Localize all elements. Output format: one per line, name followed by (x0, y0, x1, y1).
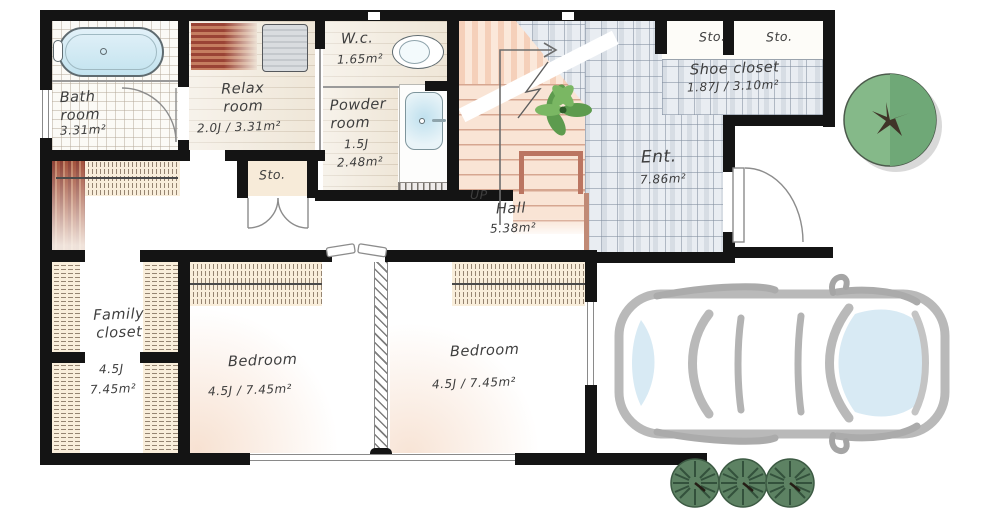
car (619, 277, 949, 451)
bedroom-doors (326, 244, 387, 257)
bath-divider-line (52, 80, 178, 82)
wall-segment (237, 156, 248, 198)
shoe-closet-label: Shoe closet (690, 58, 780, 79)
bedroom-west-label: Bedroom (228, 351, 298, 372)
wall-segment (40, 150, 190, 161)
relax-room-mat (191, 23, 257, 70)
sink-faucet-dot (419, 118, 425, 124)
wall-segment (723, 115, 835, 126)
stair-rail (519, 151, 583, 194)
bush (719, 459, 767, 507)
storage-strip (662, 21, 823, 60)
wall-segment (140, 250, 332, 262)
wall-notch (368, 12, 380, 20)
floor-plan: Bath room 3.31m² Relax room 2.0J / 3.31m… (0, 0, 1000, 510)
bedroom-west-area: 4.5J / 7.45m² (208, 382, 292, 400)
bedroom-east-closet-rod (452, 283, 585, 285)
wall-segment (40, 10, 52, 90)
family-closet-area-sqm: 7.45m² (90, 381, 137, 398)
wall-segment (385, 250, 585, 262)
partition-line (319, 48, 321, 152)
bath-room-area: 3.31m² (60, 122, 107, 139)
wall-segment (40, 250, 85, 262)
bush (671, 459, 719, 507)
bedroom-partition-future (374, 262, 388, 452)
powder-room-area-sqm: 2.48m² (337, 154, 384, 171)
wall-segment (40, 453, 250, 465)
toilet (392, 35, 444, 69)
storage-wet-label: Sto. (259, 167, 286, 184)
bush (766, 459, 814, 507)
entrance-wood-liner (584, 193, 589, 252)
wall-segment (723, 126, 735, 172)
sink-faucet-lever (432, 119, 446, 122)
wall-segment (447, 21, 459, 201)
shower-unit (262, 24, 308, 72)
wall-segment (40, 352, 85, 363)
wc-area: 1.65m² (337, 51, 384, 68)
bedroom-west-closet-rod (183, 283, 322, 285)
wall-segment (315, 21, 325, 49)
wall-segment (585, 385, 597, 465)
bathtub-faucet (53, 40, 63, 62)
window (42, 90, 49, 138)
powder-room-label: Powder room (329, 95, 402, 134)
bathtub-drain (100, 48, 107, 55)
family-closet-area-jo: 4.5J (99, 362, 124, 378)
bedroom-east-label: Bedroom (450, 341, 520, 362)
wall-segment (515, 453, 707, 465)
entrance-area: 7.86m² (640, 171, 687, 188)
hall-label: Hall (496, 199, 526, 218)
entrance-label: Ent. (641, 146, 677, 168)
hall-area: 5.38m² (490, 220, 537, 237)
wall-segment (728, 247, 833, 258)
wall-notch (562, 12, 574, 20)
wc-label: W.c. (341, 29, 374, 48)
porch (735, 127, 823, 247)
bathtub (58, 27, 164, 77)
storage-double-door (248, 198, 308, 228)
storage-right-label: Sto. (766, 29, 793, 46)
wall-segment (585, 250, 597, 302)
bedroom-east-area: 4.5J / 7.45m² (432, 375, 516, 393)
stairs-up-label: UP (470, 187, 488, 203)
toilet-bowl (399, 40, 430, 64)
family-closet-label: Family closet (87, 305, 150, 343)
wall-segment (40, 138, 52, 465)
bath-room-label: Bath room (59, 87, 126, 126)
storage-left-label: Sto. (699, 29, 726, 46)
tree (844, 74, 942, 172)
wall-segment (823, 10, 835, 127)
powder-room-area-jo: 1.5J (344, 137, 369, 153)
shoe-closet-area: 1.87J / 3.10m² (687, 77, 780, 95)
wall-segment (178, 250, 190, 455)
bathtub-inner-line (65, 34, 157, 70)
window (587, 302, 594, 385)
wall-segment (585, 252, 735, 263)
wall-segment (40, 10, 835, 21)
corridor-closet-rod (56, 177, 178, 179)
corridor-wood-floor (52, 161, 85, 250)
relax-room-label: Relax room (206, 79, 279, 118)
wall-segment (178, 21, 189, 87)
wall-segment (655, 10, 667, 54)
relax-room-area: 2.0J / 3.31m² (197, 119, 281, 137)
window (250, 454, 515, 461)
